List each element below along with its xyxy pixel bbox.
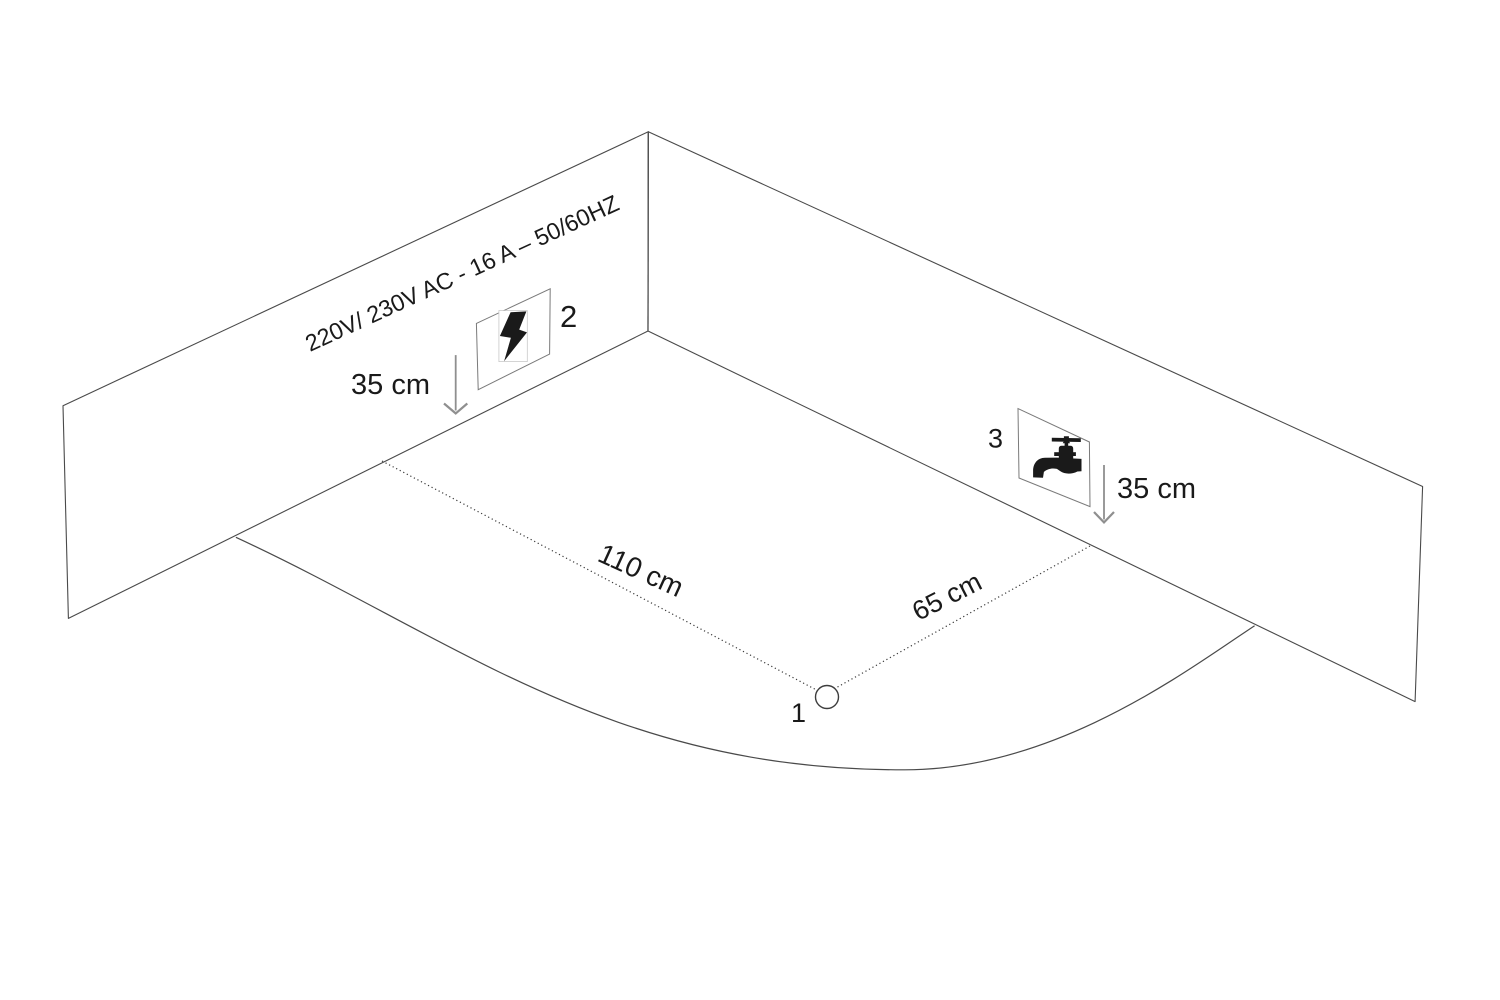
svg-text:35 cm: 35 cm xyxy=(351,369,430,401)
svg-text:65 cm: 65 cm xyxy=(907,566,986,626)
svg-text:110 cm: 110 cm xyxy=(594,538,689,603)
svg-text:35 cm: 35 cm xyxy=(1117,473,1196,505)
svg-text:3: 3 xyxy=(988,424,1003,454)
svg-text:2: 2 xyxy=(560,299,577,334)
svg-text:1: 1 xyxy=(791,698,806,728)
